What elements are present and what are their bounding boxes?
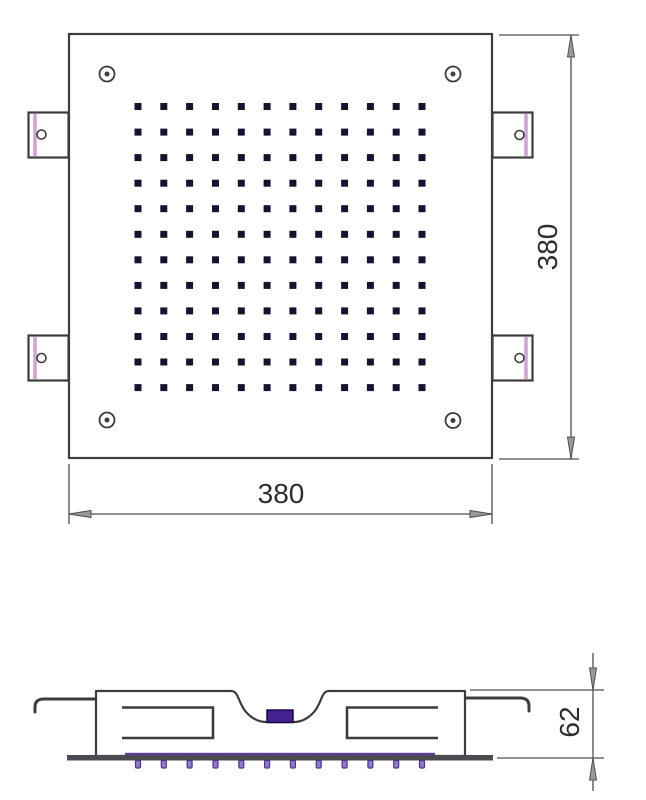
arrow-down-icon: [568, 437, 575, 459]
nozzle-hole: [289, 103, 296, 110]
nozzle-hole: [315, 129, 322, 136]
nozzle-hole: [315, 231, 322, 238]
nozzle-hole: [393, 307, 400, 314]
nozzle-hole: [367, 205, 374, 212]
nozzle-hole: [160, 282, 167, 289]
mounting-clip-right: [465, 698, 529, 711]
nozzle-hole: [289, 333, 296, 340]
tab-hole: [515, 131, 524, 140]
nozzle-hole: [419, 256, 426, 263]
nozzle-hole: [315, 333, 322, 340]
nozzle-hole: [315, 307, 322, 314]
nozzle-hole: [238, 180, 245, 187]
nozzle-hole: [341, 256, 348, 263]
nozzle-hole: [315, 359, 322, 366]
nozzle-hole: [238, 154, 245, 161]
nozzle-hole: [160, 384, 167, 391]
arrow-left-icon: [69, 511, 91, 518]
nozzle-hole: [393, 256, 400, 263]
nozzle-hole: [341, 154, 348, 161]
side-nozzle: [161, 761, 166, 769]
nozzle-hole: [264, 384, 271, 391]
nozzle-hole: [212, 180, 219, 187]
nozzle-hole: [393, 180, 400, 187]
nozzle-hole: [135, 231, 142, 238]
nozzle-hole: [341, 282, 348, 289]
nozzle-hole: [212, 307, 219, 314]
nozzle-hole: [264, 103, 271, 110]
nozzle-hole: [212, 103, 219, 110]
nozzle-hole: [393, 231, 400, 238]
nozzle-hole: [135, 103, 142, 110]
nozzle-hole: [315, 103, 322, 110]
nozzle-hole: [289, 256, 296, 263]
nozzle-hole: [315, 256, 322, 263]
nozzle-hole: [341, 307, 348, 314]
side-nozzle: [265, 761, 270, 769]
nozzle-hole: [264, 205, 271, 212]
nozzle-hole: [341, 205, 348, 212]
nozzle-hole: [238, 129, 245, 136]
nozzle-hole: [289, 307, 296, 314]
nozzle-hole: [160, 154, 167, 161]
nozzle-hole: [186, 384, 193, 391]
nozzle-hole: [367, 256, 374, 263]
nozzle-hole: [160, 205, 167, 212]
nozzle-hole: [186, 129, 193, 136]
nozzle-hole: [264, 256, 271, 263]
tab-hole: [37, 354, 46, 363]
height-dimension-label: 380: [532, 224, 563, 271]
nozzle-hole: [160, 307, 167, 314]
nozzle-hole: [419, 231, 426, 238]
nozzle-hole: [419, 103, 426, 110]
nozzle-hole: [238, 205, 245, 212]
nozzle-hole: [135, 333, 142, 340]
nozzle-hole: [341, 231, 348, 238]
nozzle-hole: [393, 154, 400, 161]
nozzle-hole: [186, 231, 193, 238]
nozzle-hole: [160, 103, 167, 110]
nozzle-hole: [367, 231, 374, 238]
nozzle-hole: [135, 154, 142, 161]
nozzle-hole: [160, 180, 167, 187]
nozzle-hole: [289, 359, 296, 366]
arrow-up-icon: [568, 35, 575, 57]
nozzle-hole: [419, 129, 426, 136]
nozzle-hole: [264, 307, 271, 314]
nozzle-hole: [367, 359, 374, 366]
side-nozzle: [187, 761, 192, 769]
nozzle-hole: [212, 205, 219, 212]
drawing-svg: 380 380 62: [0, 0, 646, 800]
nozzle-hole: [315, 180, 322, 187]
nozzle-hole: [186, 154, 193, 161]
nozzle-hole: [393, 103, 400, 110]
nozzle-hole: [393, 205, 400, 212]
nozzle-hole: [186, 256, 193, 263]
nozzle-hole: [367, 180, 374, 187]
nozzle-hole: [393, 333, 400, 340]
nozzle-hole: [419, 359, 426, 366]
nozzle-hole: [264, 359, 271, 366]
nozzle-hole: [238, 231, 245, 238]
nozzle-hole: [341, 333, 348, 340]
nozzle-hole: [160, 333, 167, 340]
nozzle-hole: [264, 282, 271, 289]
nozzle-hole: [264, 180, 271, 187]
nozzle-hole: [341, 359, 348, 366]
nozzle-hole: [212, 359, 219, 366]
nozzle-hole: [238, 384, 245, 391]
nozzle-hole: [419, 180, 426, 187]
side-view: [35, 691, 529, 768]
nozzle-hole: [341, 129, 348, 136]
nozzle-hole: [367, 129, 374, 136]
width-dimension-label: 380: [258, 478, 305, 509]
nozzle-hole: [160, 256, 167, 263]
nozzle-hole: [135, 256, 142, 263]
nozzle-hole: [212, 129, 219, 136]
side-nozzle: [420, 761, 425, 769]
nozzle-hole: [289, 231, 296, 238]
side-nozzle: [342, 761, 347, 769]
nozzle-hole: [186, 307, 193, 314]
nozzle-hole: [135, 205, 142, 212]
spray-plate: [67, 755, 493, 761]
nozzle-hole: [186, 103, 193, 110]
nozzle-hole: [264, 231, 271, 238]
nozzle-hole: [135, 129, 142, 136]
nozzle-hole: [289, 180, 296, 187]
nozzle-hole: [135, 282, 142, 289]
nozzle-hole: [367, 103, 374, 110]
nozzle-hole: [367, 333, 374, 340]
nozzle-hole: [186, 282, 193, 289]
nozzle-hole: [341, 180, 348, 187]
nozzle-hole: [367, 154, 374, 161]
nozzle-hole: [367, 384, 374, 391]
height-dimension: 380: [499, 35, 579, 459]
mounting-clip-left: [35, 699, 96, 712]
nozzle-hole: [212, 256, 219, 263]
top-view-plate: [69, 34, 492, 458]
depth-dimension-label: 62: [554, 706, 585, 737]
nozzle-hole: [135, 180, 142, 187]
nozzle-hole: [419, 282, 426, 289]
mounting-tab-left-bottom: [29, 336, 69, 381]
nozzle-hole: [393, 384, 400, 391]
nozzle-hole: [160, 129, 167, 136]
nozzle-hole: [238, 359, 245, 366]
nozzle-hole: [264, 154, 271, 161]
nozzle-hole: [315, 282, 322, 289]
nozzle-hole: [341, 384, 348, 391]
nozzle-hole: [186, 180, 193, 187]
nozzle-hole: [419, 384, 426, 391]
side-nozzle: [316, 761, 321, 769]
nozzle-hole: [367, 307, 374, 314]
nozzle-hole: [289, 205, 296, 212]
tab-hole: [515, 354, 524, 363]
water-inlet: [267, 710, 293, 723]
nozzle-hole: [419, 333, 426, 340]
technical-drawing-page: 380 380 62: [0, 0, 646, 800]
nozzle-hole: [135, 384, 142, 391]
nozzle-hole: [419, 205, 426, 212]
arrow-down-icon: [590, 668, 597, 690]
nozzle-hole: [212, 333, 219, 340]
top-view: [29, 34, 533, 458]
depth-dimension: 62: [470, 653, 604, 791]
width-dimension: 380: [69, 464, 492, 524]
mounting-tab-right-bottom: [493, 336, 533, 381]
side-nozzle: [290, 761, 295, 769]
nozzle-hole: [186, 333, 193, 340]
nozzle-hole: [160, 359, 167, 366]
nozzle-hole: [186, 359, 193, 366]
side-nozzle: [368, 761, 373, 769]
side-nozzle: [213, 761, 218, 769]
arrow-right-icon: [470, 511, 492, 518]
nozzle-hole: [289, 384, 296, 391]
side-nozzle-row: [136, 761, 425, 769]
nozzle-hole: [238, 103, 245, 110]
nozzle-hole: [238, 282, 245, 289]
nozzle-hole: [186, 205, 193, 212]
nozzle-hole: [315, 154, 322, 161]
nozzle-hole: [393, 129, 400, 136]
nozzle-hole: [367, 282, 374, 289]
side-nozzle: [136, 761, 141, 769]
nozzle-hole: [160, 231, 167, 238]
nozzle-hole: [264, 129, 271, 136]
nozzle-hole: [289, 154, 296, 161]
nozzle-hole: [238, 256, 245, 263]
side-nozzle: [394, 761, 399, 769]
nozzle-hole: [135, 307, 142, 314]
nozzle-hole: [289, 129, 296, 136]
nozzle-hole: [238, 333, 245, 340]
nozzle-hole: [212, 384, 219, 391]
nozzle-hole: [135, 359, 142, 366]
nozzle-hole: [393, 282, 400, 289]
nozzle-hole: [289, 282, 296, 289]
nozzle-hole: [212, 231, 219, 238]
nozzle-hole: [315, 205, 322, 212]
side-nozzle: [239, 761, 244, 769]
nozzle-hole: [419, 154, 426, 161]
nozzle-hole: [212, 154, 219, 161]
nozzle-hole: [341, 103, 348, 110]
arrow-up-icon: [590, 758, 597, 780]
nozzle-hole: [238, 307, 245, 314]
side-view-body: [96, 691, 465, 756]
tab-hole: [37, 130, 46, 139]
mounting-tab-right-top: [493, 113, 533, 158]
mounting-tab-left-top: [29, 113, 69, 158]
nozzle-hole: [315, 384, 322, 391]
nozzle-hole: [212, 282, 219, 289]
nozzle-hole: [393, 359, 400, 366]
nozzle-hole: [419, 307, 426, 314]
nozzle-hole: [264, 333, 271, 340]
